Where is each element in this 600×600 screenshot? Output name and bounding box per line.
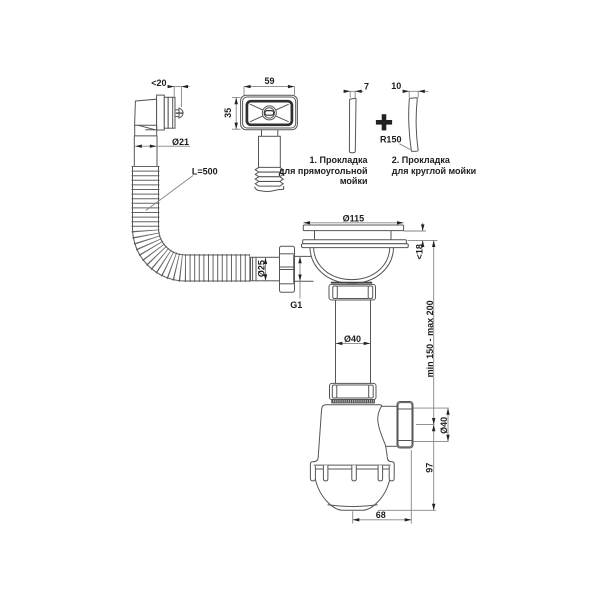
svg-text:59: 59 (264, 76, 274, 86)
svg-text:Ø21: Ø21 (172, 137, 189, 147)
svg-text:7: 7 (364, 81, 369, 91)
svg-text:для круглой мойки: для круглой мойки (392, 166, 476, 176)
svg-text:мойки: мойки (340, 176, 368, 186)
svg-text:68: 68 (376, 510, 386, 520)
svg-text:L=500: L=500 (192, 167, 218, 177)
svg-text:R150: R150 (380, 134, 402, 144)
svg-text:G1: G1 (290, 300, 302, 310)
svg-text:10: 10 (391, 81, 401, 91)
svg-text:1. Прокладка: 1. Прокладка (309, 155, 368, 165)
svg-text:Ø40: Ø40 (344, 334, 361, 344)
svg-text:35: 35 (223, 108, 233, 118)
svg-text:<18: <18 (414, 244, 424, 259)
svg-text:97: 97 (425, 463, 435, 473)
svg-text:2. Прокладка: 2. Прокладка (392, 155, 451, 165)
svg-text:для прямоугольной: для прямоугольной (279, 166, 368, 176)
svg-text:Ø115: Ø115 (343, 213, 365, 223)
svg-text:Ø40: Ø40 (439, 417, 449, 434)
svg-text:<20: <20 (151, 78, 166, 88)
svg-text:min 150 - max 200: min 150 - max 200 (425, 300, 435, 377)
